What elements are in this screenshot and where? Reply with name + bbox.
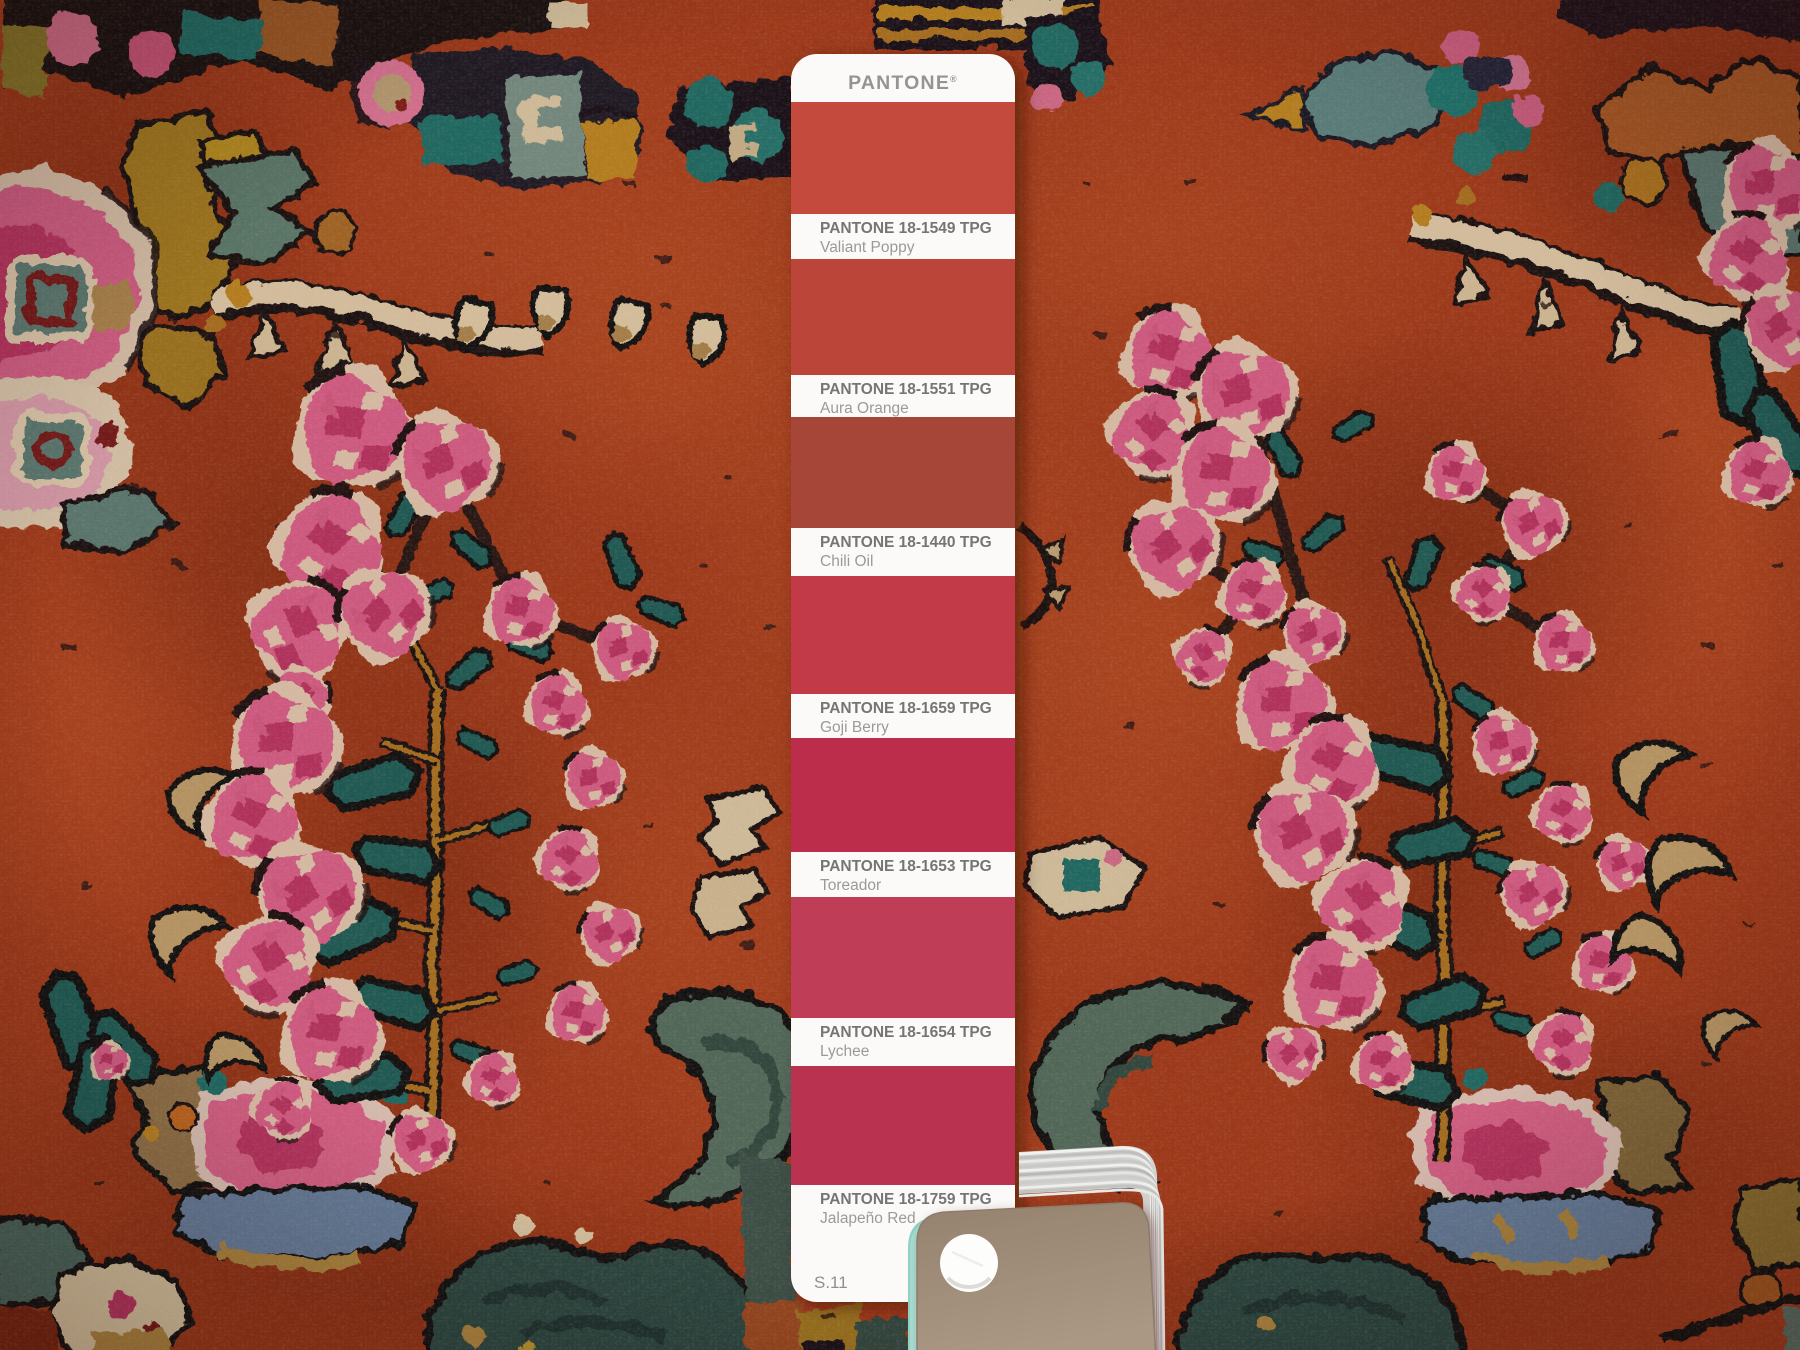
svg-text:PANTONE 18-1654 TPG: PANTONE 18-1654 TPG [820,1024,992,1041]
svg-text:Chili Oil: Chili Oil [820,553,873,570]
svg-text:PANTONE 18-1549 TPG: PANTONE 18-1549 TPG [820,220,992,237]
svg-text:PANTONE 18-1759 TPG: PANTONE 18-1759 TPG [820,1191,992,1208]
svg-text:PANTONE 18-1659 TPG: PANTONE 18-1659 TPG [820,700,992,717]
svg-text:Lychee: Lychee [820,1043,869,1060]
svg-text:Toreador: Toreador [820,877,881,894]
svg-text:Goji Berry: Goji Berry [820,719,889,736]
svg-text:PANTONE 18-1551 TPG: PANTONE 18-1551 TPG [820,381,992,398]
svg-text:Jalapeño Red: Jalapeño Red [820,1210,916,1227]
svg-text:PANTONE 18-1440 TPG: PANTONE 18-1440 TPG [820,534,992,551]
svg-text:PANTONE®: PANTONE® [848,72,958,94]
svg-text:PANTONE 18-1653 TPG: PANTONE 18-1653 TPG [820,858,992,875]
svg-text:Valiant Poppy: Valiant Poppy [820,239,915,256]
svg-text:S.11: S.11 [814,1273,848,1292]
svg-text:Aura Orange: Aura Orange [820,400,909,417]
